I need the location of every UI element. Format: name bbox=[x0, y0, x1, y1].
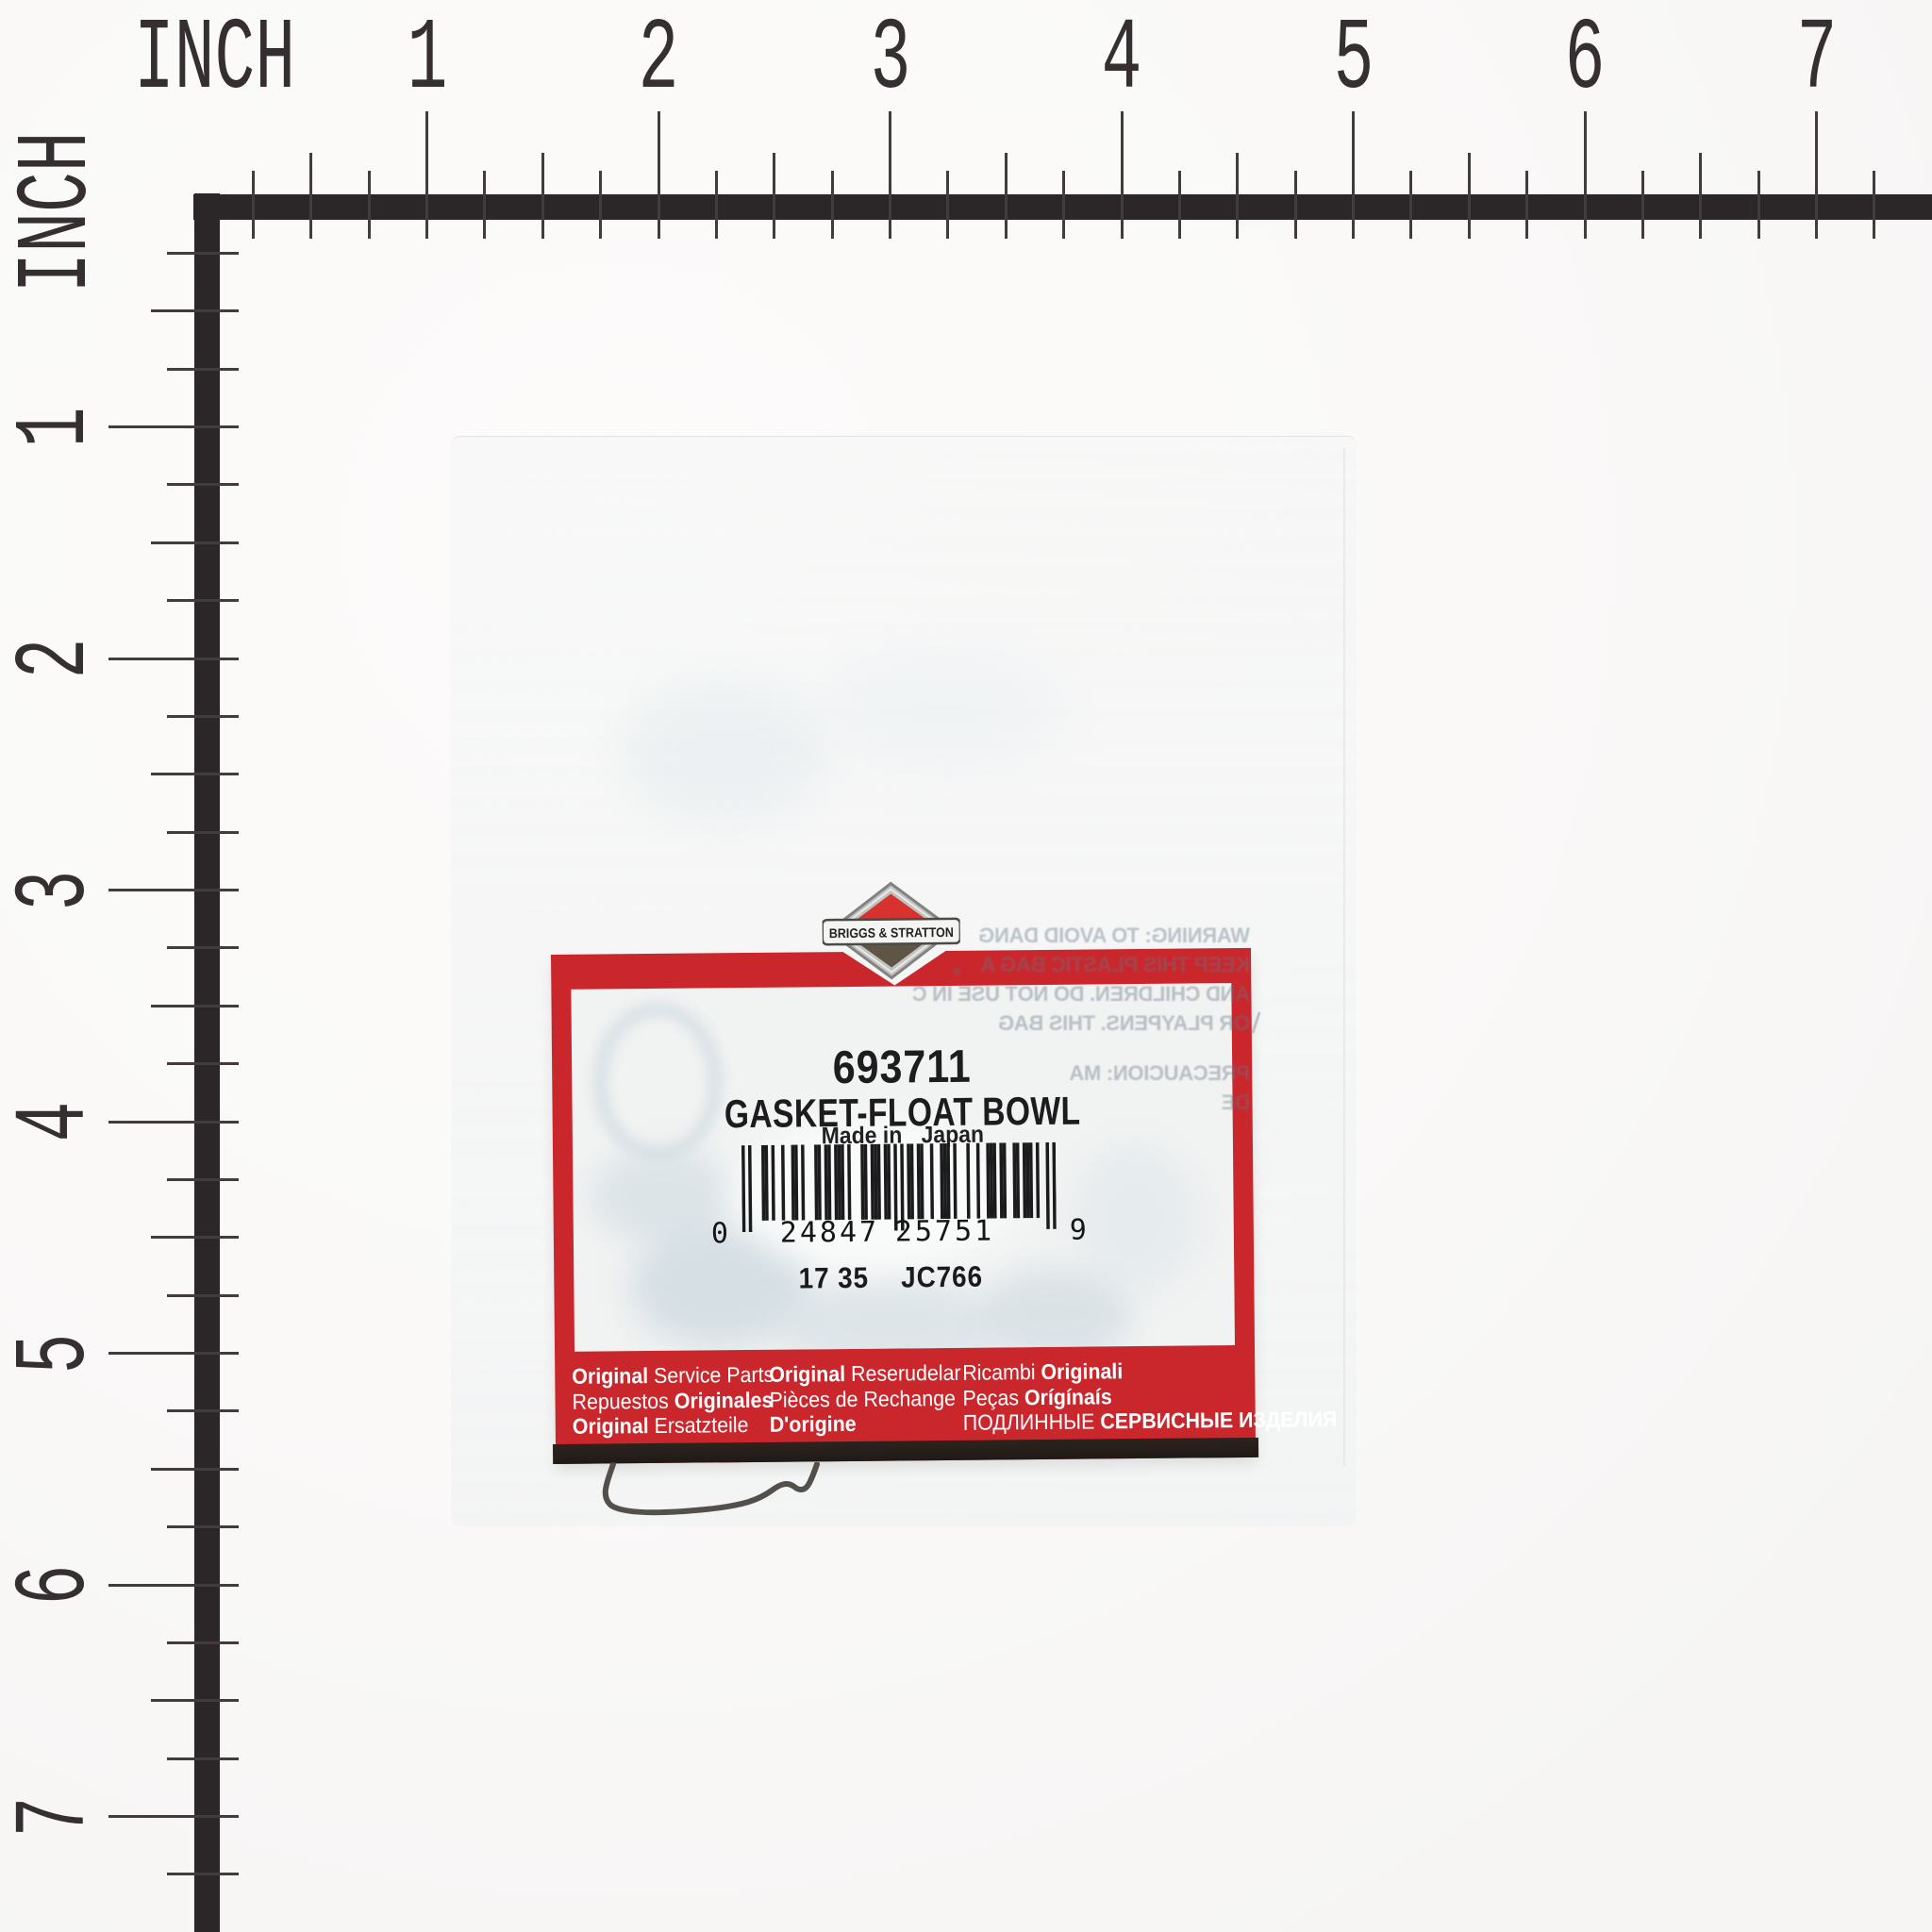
ruler-top-tick bbox=[1062, 171, 1065, 239]
footer-text: Original bbox=[573, 1413, 649, 1439]
footer-line: Pièces de Rechange bbox=[769, 1385, 961, 1411]
ruler-left-number: 4 bbox=[6, 1102, 108, 1142]
code-line: 17 35JC766 bbox=[593, 1258, 1188, 1298]
ruler-left-tick bbox=[167, 1062, 239, 1065]
ruler-top-tick bbox=[1236, 153, 1239, 239]
footer-line: Original Service Parts bbox=[572, 1362, 774, 1390]
footer-text: Original bbox=[769, 1361, 845, 1387]
label-footer: Original Service PartsRepuestos Original… bbox=[555, 1357, 1256, 1444]
footer-text: Originales bbox=[675, 1387, 774, 1412]
ruler-top-tick bbox=[1757, 171, 1760, 239]
footer-column: Original ReserudelarPièces de RechangeD'… bbox=[769, 1360, 975, 1438]
ruler-top-number: 6 bbox=[1565, 9, 1606, 111]
ruler-left-tick bbox=[151, 541, 239, 544]
ruler-left-tick bbox=[167, 1873, 239, 1875]
ruler-top-tick bbox=[1815, 111, 1818, 239]
ruler-left-tick bbox=[167, 1178, 239, 1181]
ruler-top-tick bbox=[1178, 171, 1181, 239]
barcode-digit-right: 9 bbox=[1070, 1214, 1090, 1247]
ruler-top-tick bbox=[1584, 111, 1587, 239]
footer-text: Original bbox=[572, 1363, 648, 1389]
ruler-left-tick bbox=[167, 368, 239, 371]
ruler-top-tick bbox=[1294, 171, 1297, 239]
ruler-left-tick bbox=[151, 1236, 239, 1239]
ruler-top-tick bbox=[1352, 111, 1355, 239]
ruler-left-tick bbox=[108, 1584, 239, 1587]
ruler-left-tick bbox=[167, 1409, 239, 1412]
ruler-left-number: 7 bbox=[6, 1796, 108, 1837]
ruler-top-tick bbox=[1121, 111, 1124, 239]
ruler-left-tick bbox=[167, 599, 239, 602]
barcode-digits-group2: 25751 bbox=[895, 1215, 995, 1249]
footer-line: D'origine bbox=[770, 1410, 962, 1437]
product-photo: INCH 1234567 INCH 1234567 693711 GASKET-… bbox=[0, 0, 1932, 1932]
ruler-top-tick bbox=[773, 153, 775, 239]
ruler-top-tick bbox=[1699, 153, 1702, 239]
ruler-top-tick bbox=[1409, 171, 1412, 239]
bag-back-print-line: WARNING: TO AVOID DANG bbox=[929, 921, 1250, 950]
ruler-top-tick bbox=[1525, 171, 1528, 239]
bag-back-print: WARNING: TO AVOID DANGKEEP THIS PLASTIC … bbox=[929, 921, 1250, 1117]
ruler-left-tick bbox=[108, 658, 239, 660]
ruler-top-tick bbox=[715, 171, 718, 239]
gasket bbox=[564, 1462, 866, 1538]
bag-back-print-line: PRECAUCION: MA bbox=[929, 1058, 1250, 1088]
ruler-top-tick bbox=[425, 111, 428, 239]
bag-fold-line bbox=[1343, 447, 1345, 1466]
ruler-left-number: 6 bbox=[6, 1565, 108, 1606]
ruler-top-tick bbox=[368, 171, 371, 239]
ruler-left-tick bbox=[167, 1757, 239, 1760]
ruler-top-tick bbox=[831, 171, 834, 239]
ruler-left-tick bbox=[167, 831, 239, 834]
footer-line: Peças Orígínaís bbox=[962, 1383, 1235, 1410]
bag-back-print-line: AND CHILDREN. DO NOT USE IN C bbox=[929, 979, 1250, 1008]
ruler-left-tick bbox=[108, 1352, 239, 1355]
ruler-top-number: 2 bbox=[639, 9, 679, 111]
footer-line: Ricambi Originali bbox=[962, 1357, 1235, 1385]
ruler-left-tick bbox=[151, 773, 239, 775]
ruler-left-number: 5 bbox=[6, 1333, 108, 1374]
footer-text: Originali bbox=[1041, 1358, 1123, 1384]
footer-text: Repuestos bbox=[572, 1388, 674, 1413]
footer-text: СЕРВИСНЫЕ ИЗДЕЛИЯ bbox=[1100, 1407, 1337, 1433]
ruler-left-tick bbox=[167, 1641, 239, 1644]
footer-text: Service Parts bbox=[648, 1362, 774, 1388]
ruler-top-tick bbox=[483, 171, 486, 239]
ruler-left-tick bbox=[108, 425, 239, 428]
ruler-top-tick bbox=[541, 153, 544, 239]
bag-back-print-line: OR PLAYPENS. THIS BAG bbox=[929, 1008, 1250, 1038]
ruler-left-tick bbox=[108, 1815, 239, 1818]
ruler-top-tick bbox=[1641, 171, 1644, 239]
ruler-top-tick bbox=[946, 171, 949, 239]
footer-text: D'origine bbox=[770, 1411, 857, 1437]
ruler-top-tick bbox=[1005, 153, 1008, 239]
ruler-top-tick bbox=[599, 171, 602, 239]
ruler-left-tick bbox=[167, 946, 239, 949]
ruler-top-tick bbox=[252, 171, 255, 239]
footer-text: Ersatzteile bbox=[648, 1412, 748, 1438]
footer-text: Orígínaís bbox=[1024, 1384, 1112, 1409]
footer-column: Ricambi OriginaliPeças OrígínaísПОДЛИННЫ… bbox=[962, 1357, 1256, 1435]
ruler-left-tick bbox=[167, 483, 239, 486]
ruler-left-number: 2 bbox=[6, 639, 108, 679]
footer-line: Original Ersatzteile bbox=[573, 1412, 774, 1440]
ruler-top-tick bbox=[309, 153, 312, 239]
ruler-left-tick bbox=[151, 1468, 239, 1471]
ruler-left-tick bbox=[108, 1121, 239, 1124]
supplier-code: JC766 bbox=[901, 1260, 983, 1294]
ruler-top-tick bbox=[1873, 171, 1875, 239]
footer-text: Peças bbox=[962, 1385, 1024, 1410]
footer-line: Original Reserudelar bbox=[769, 1360, 961, 1387]
ruler-top-number: 4 bbox=[1102, 9, 1142, 111]
ruler-top-number: 7 bbox=[1796, 9, 1837, 111]
ruler-top-unit-label: INCH bbox=[134, 9, 295, 111]
footer-text: Reserudelar bbox=[845, 1360, 961, 1386]
ruler-left-tick bbox=[151, 309, 239, 312]
footer-line: ПОДЛИННЫЕ СЕРВИСНЫЕ ИЗДЕЛИЯ bbox=[963, 1407, 1236, 1435]
ruler-top-number: 3 bbox=[870, 9, 910, 111]
ruler-left-unit-label: INCH bbox=[8, 131, 109, 292]
ruler-left-tick bbox=[167, 1525, 239, 1528]
barcode-digits-group1: 24847 bbox=[780, 1216, 880, 1250]
bag-back-print-line: DE bbox=[929, 1088, 1250, 1117]
ruler-left-number: 1 bbox=[6, 407, 108, 447]
footer-text: Pièces de Rechange bbox=[769, 1385, 956, 1411]
date-code: 17 35 bbox=[799, 1261, 870, 1295]
footer-text: ПОДЛИННЫЕ bbox=[963, 1408, 1101, 1434]
barcode-digit-left: 0 bbox=[711, 1217, 731, 1250]
ruler-left-tick bbox=[167, 252, 239, 255]
ruler-left-tick bbox=[151, 1699, 239, 1702]
ruler-left-tick bbox=[167, 1294, 239, 1297]
footer-line: Repuestos Originales bbox=[572, 1387, 774, 1414]
ruler-left-tick bbox=[108, 889, 239, 891]
ruler-left-number: 3 bbox=[6, 870, 108, 910]
ruler-left-tick bbox=[167, 715, 239, 718]
ruler-top-number: 1 bbox=[407, 9, 447, 111]
ruler-top-tick bbox=[658, 111, 660, 239]
footer-column: Original Service PartsRepuestos Original… bbox=[572, 1362, 790, 1440]
ruler-left-tick bbox=[151, 1005, 239, 1008]
ruler-top-tick bbox=[889, 111, 891, 239]
bag-bubble bbox=[819, 654, 1064, 767]
bag-bubble bbox=[621, 682, 828, 824]
ruler-top-tick bbox=[1468, 153, 1471, 239]
ruler-top-number: 5 bbox=[1333, 9, 1374, 111]
footer-text: Ricambi bbox=[962, 1359, 1041, 1385]
bag-back-print-line: KEEP THIS PLASTIC BAG A bbox=[929, 950, 1250, 979]
